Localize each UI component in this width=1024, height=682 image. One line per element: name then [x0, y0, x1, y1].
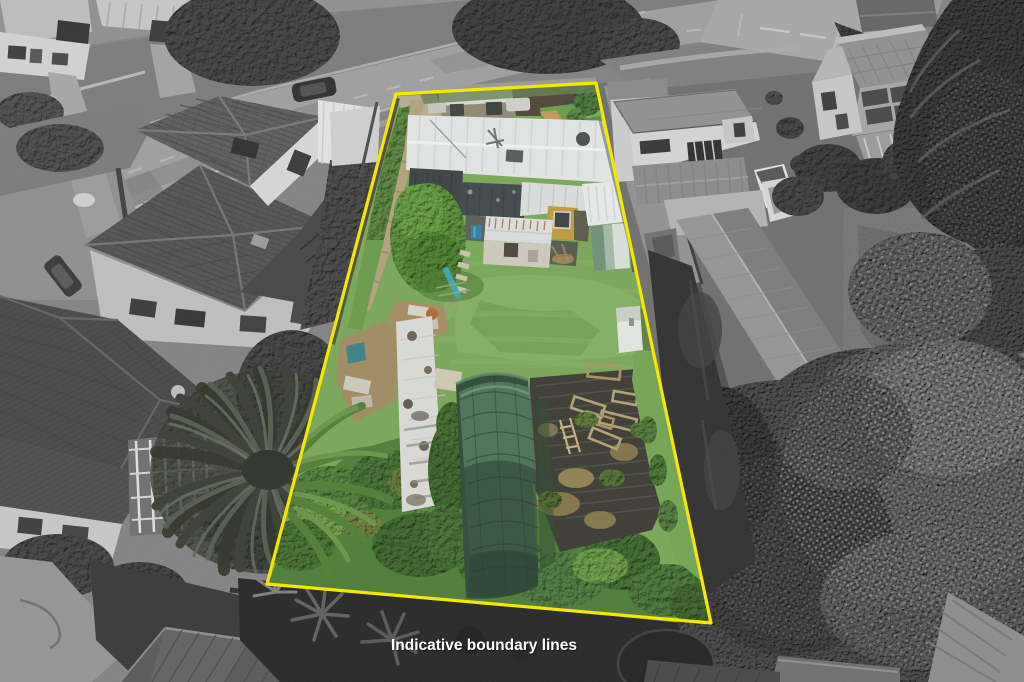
svg-text:Indicative boundary lines: Indicative boundary lines [391, 637, 577, 654]
